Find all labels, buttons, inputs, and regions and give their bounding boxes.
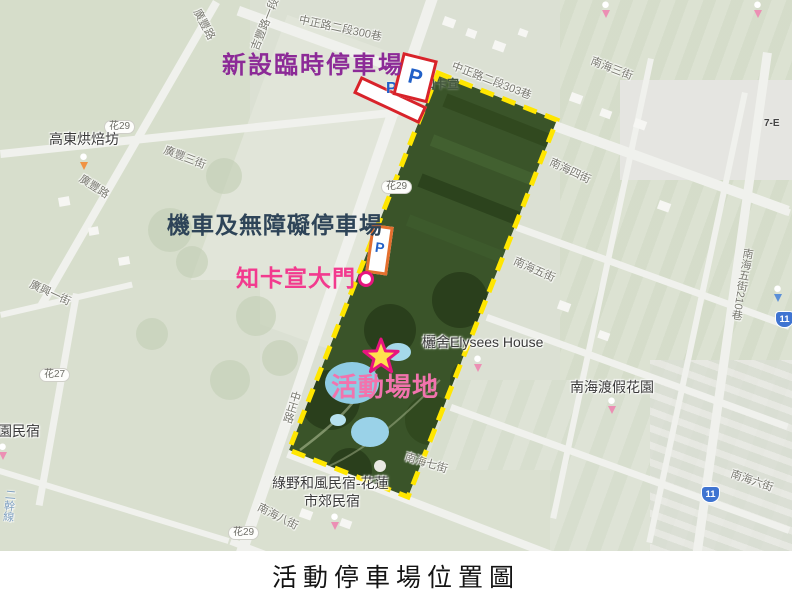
satellite-map: 中正路二段300巷中正路二段303巷吉豐路一段廣豐路廣豐路廣豐三街廣興一街南海三…: [0, 0, 792, 551]
label-new-temp-parking: 新設臨時停車場: [222, 45, 404, 80]
lodging-pin: [327, 510, 342, 525]
highway-11-shield: 11: [776, 312, 792, 327]
poi-pin: [750, 0, 765, 13]
label-moto-accessible-parking: 機車及無障礙停車場: [167, 206, 383, 240]
place-pin: [770, 282, 785, 297]
attraction-pin: [604, 394, 619, 409]
parking-p-letter: P: [405, 64, 424, 91]
gate-marker: [358, 271, 374, 287]
parking-map-figure: 中正路二段300巷中正路二段303巷吉豐路一段廣豐路廣豐路廣豐三街廣興一街南海三…: [0, 0, 792, 593]
highway-11-shield: 11: [702, 487, 719, 502]
lodging-pin: [0, 440, 10, 455]
parking-p-letter: P: [374, 239, 385, 256]
restaurant-pin: [76, 150, 91, 165]
poi-pin: [598, 0, 613, 13]
label-gate: 知卡宣大門: [236, 259, 356, 293]
figure-caption: 活動停車場位置圖: [0, 551, 792, 593]
label-event-venue: 活動場地: [331, 367, 439, 404]
lodging-pin: [470, 352, 485, 367]
